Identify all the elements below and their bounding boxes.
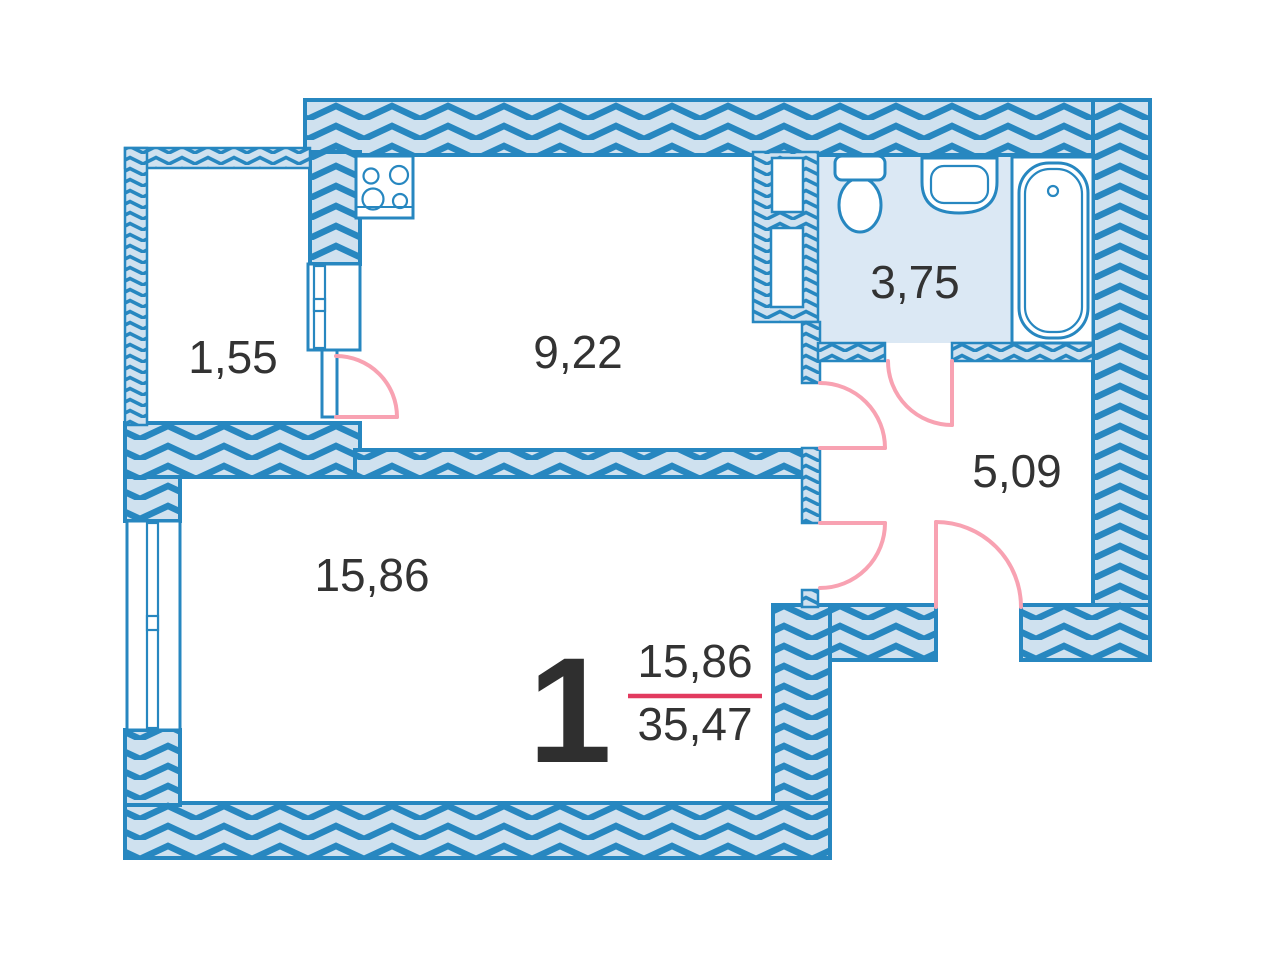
doors	[336, 356, 1021, 607]
stove-body	[356, 156, 413, 218]
apartment-summary: 1 15,86 35,47	[528, 626, 762, 794]
balcony-door-swing-arc	[336, 356, 397, 417]
total-area-value: 35,47	[637, 698, 752, 750]
balcony-block	[308, 264, 360, 417]
wall-left-lower-block	[125, 730, 180, 805]
wall-bathroom-bottom-right	[952, 343, 1093, 361]
toilet-bowl-icon	[839, 178, 881, 232]
wall-balcony-top	[125, 148, 310, 168]
balcony-door-leaf	[322, 350, 337, 417]
wall-stub-living-door-bottom	[802, 590, 818, 607]
kitchen-area-label: 9,22	[533, 326, 623, 378]
vent-duct-icon	[771, 228, 803, 307]
apartment-number: 1	[528, 626, 611, 794]
floor-plan-drawing: 1,55 9,22 3,75 5,09 15,86 1 15,86 35,47	[0, 0, 1280, 960]
wall-kitchen-bottom	[355, 450, 805, 477]
floor-plan-canvas: 1,55 9,22 3,75 5,09 15,86 1 15,86 35,47	[0, 0, 1280, 960]
entrance-door-swing-arc	[936, 522, 1021, 607]
wall-right	[1093, 100, 1150, 660]
wall-living-right	[773, 605, 830, 803]
wall-balcony-divider	[310, 152, 360, 264]
vent-duct-icon	[772, 158, 803, 212]
living-area-label: 15,86	[314, 549, 429, 601]
wall-stub-between-doors	[802, 448, 820, 523]
vent-ducts	[771, 158, 803, 307]
wall-bottom	[125, 803, 830, 858]
living-room-window	[127, 521, 180, 730]
balcony-area-label: 1,55	[188, 331, 278, 383]
wall-top	[305, 100, 1150, 155]
window-crossbar	[314, 299, 325, 311]
wall-balcony-bottom	[125, 423, 360, 477]
toilet-tank-icon	[835, 156, 885, 180]
living-area-value: 15,86	[637, 635, 752, 687]
living-door-swing-arc	[820, 523, 885, 588]
wall-left-upper-block	[125, 477, 180, 521]
window-crossbar	[147, 616, 158, 630]
stove-icon	[356, 156, 413, 218]
bathroom-door-swing-arc	[888, 361, 952, 425]
wall-balcony-left	[125, 148, 147, 425]
hallway-area-label: 5,09	[972, 445, 1062, 497]
kitchen-door-swing-arc	[820, 383, 885, 448]
wall-bathroom-bottom-left	[818, 343, 885, 361]
wall-bottom-right-corner	[1021, 605, 1150, 660]
bathroom-area-label: 3,75	[870, 256, 960, 308]
bathtub-icon	[1019, 163, 1088, 338]
